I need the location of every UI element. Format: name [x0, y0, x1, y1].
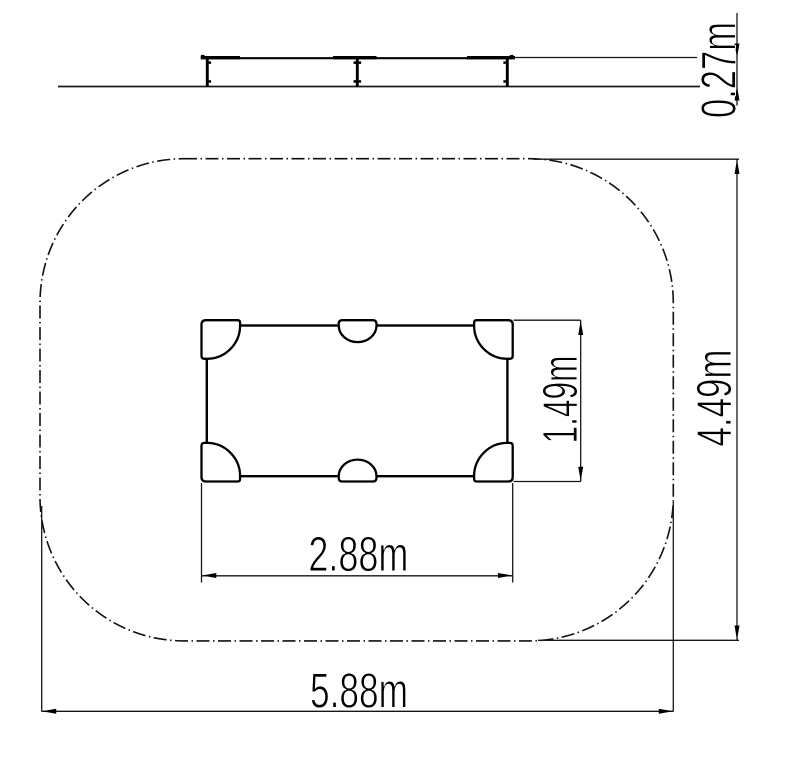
svg-text:4.49m: 4.49m — [688, 350, 742, 447]
svg-text:5.88m: 5.88m — [310, 665, 408, 719]
svg-text:1.49m: 1.49m — [534, 356, 588, 444]
svg-text:2.88m: 2.88m — [308, 528, 408, 582]
svg-text:0.27m: 0.27m — [693, 22, 747, 118]
